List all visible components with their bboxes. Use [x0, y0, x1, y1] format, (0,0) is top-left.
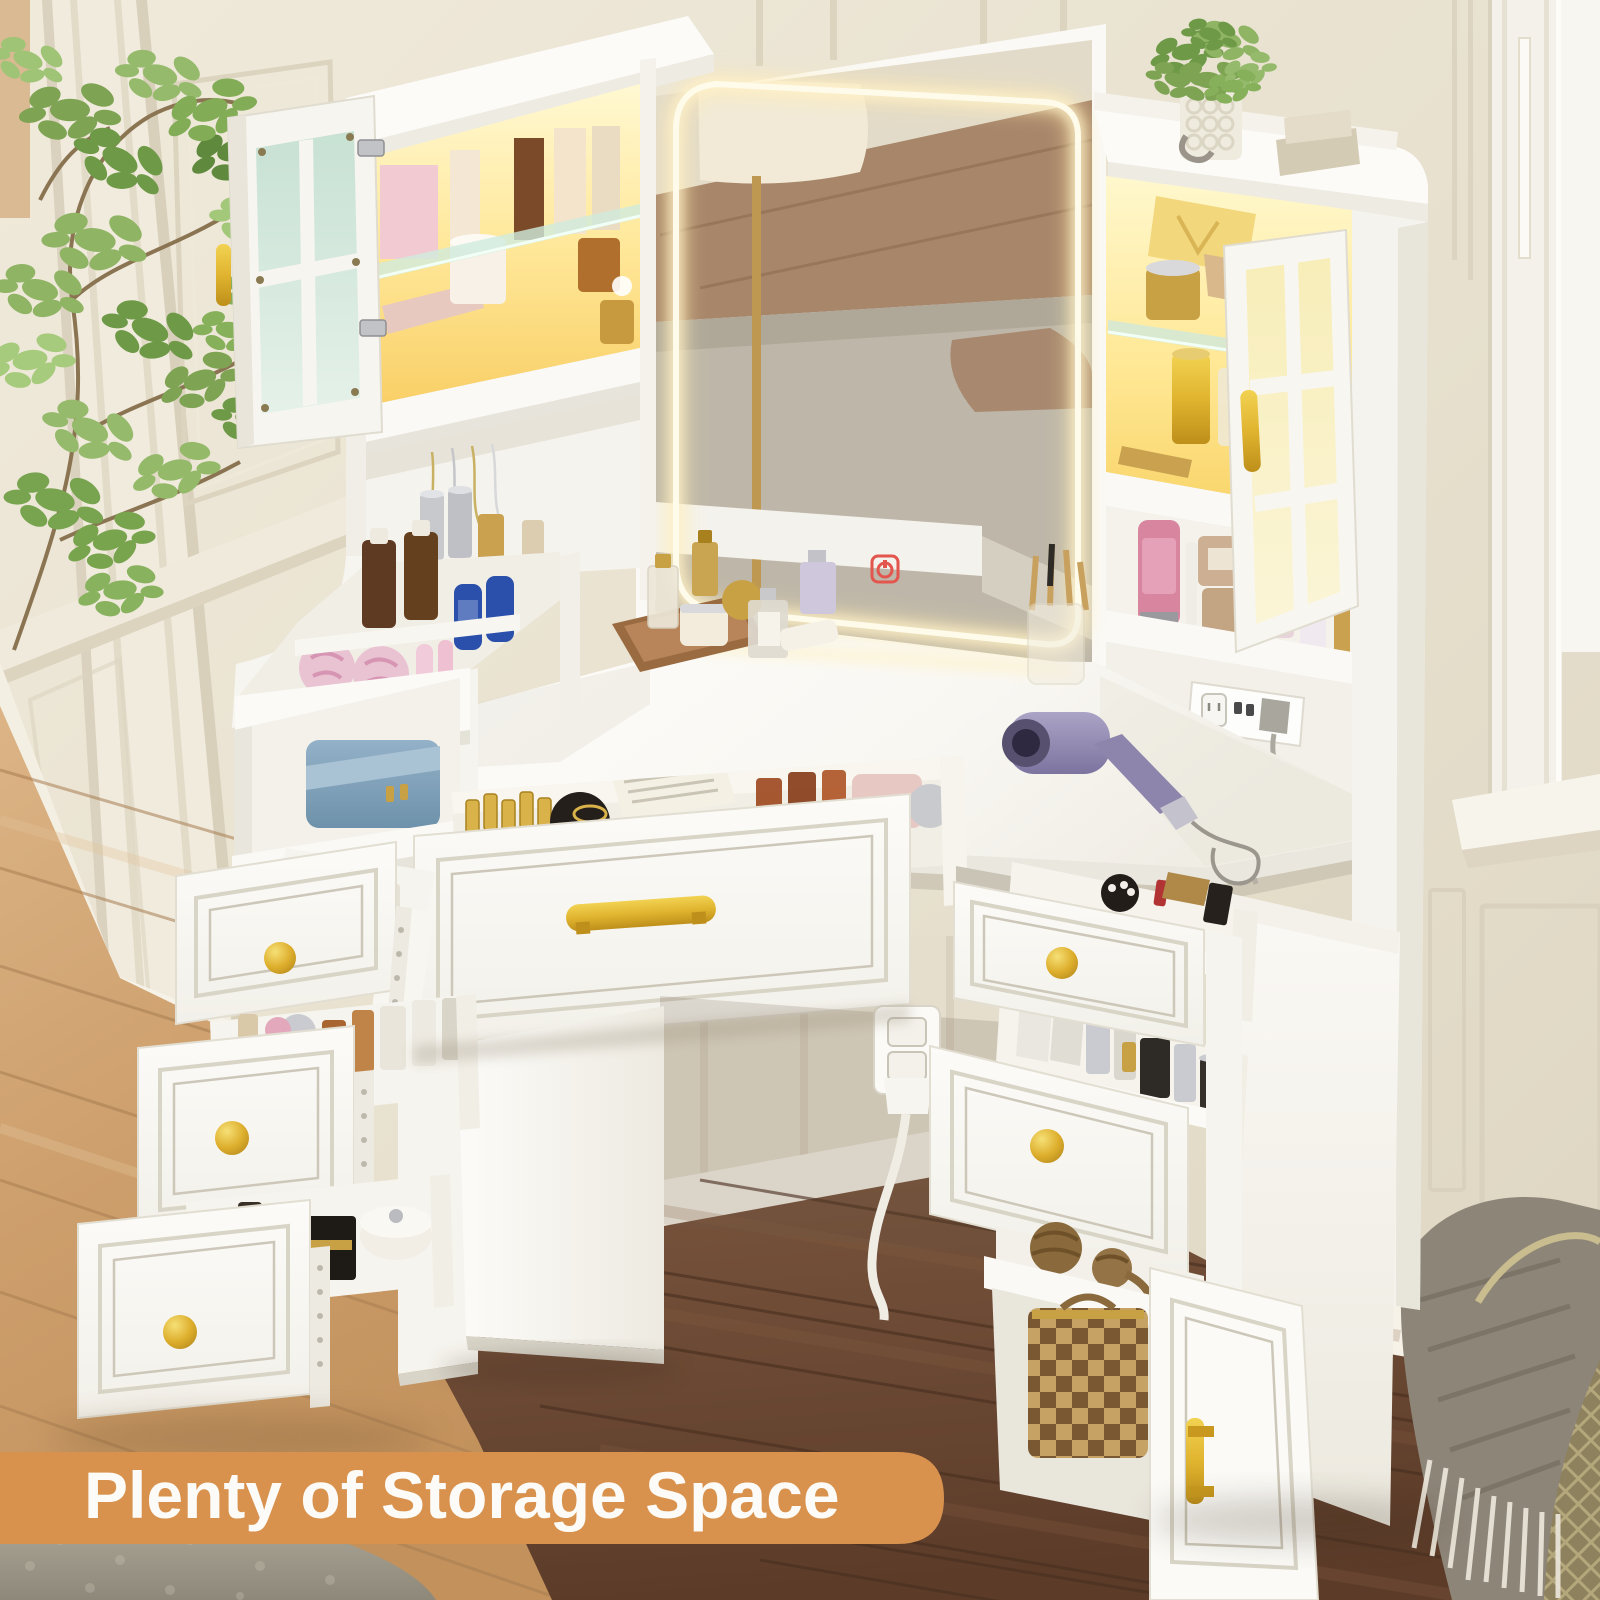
svg-text:Plenty of Storage Space: Plenty of Storage Space: [84, 1458, 840, 1532]
